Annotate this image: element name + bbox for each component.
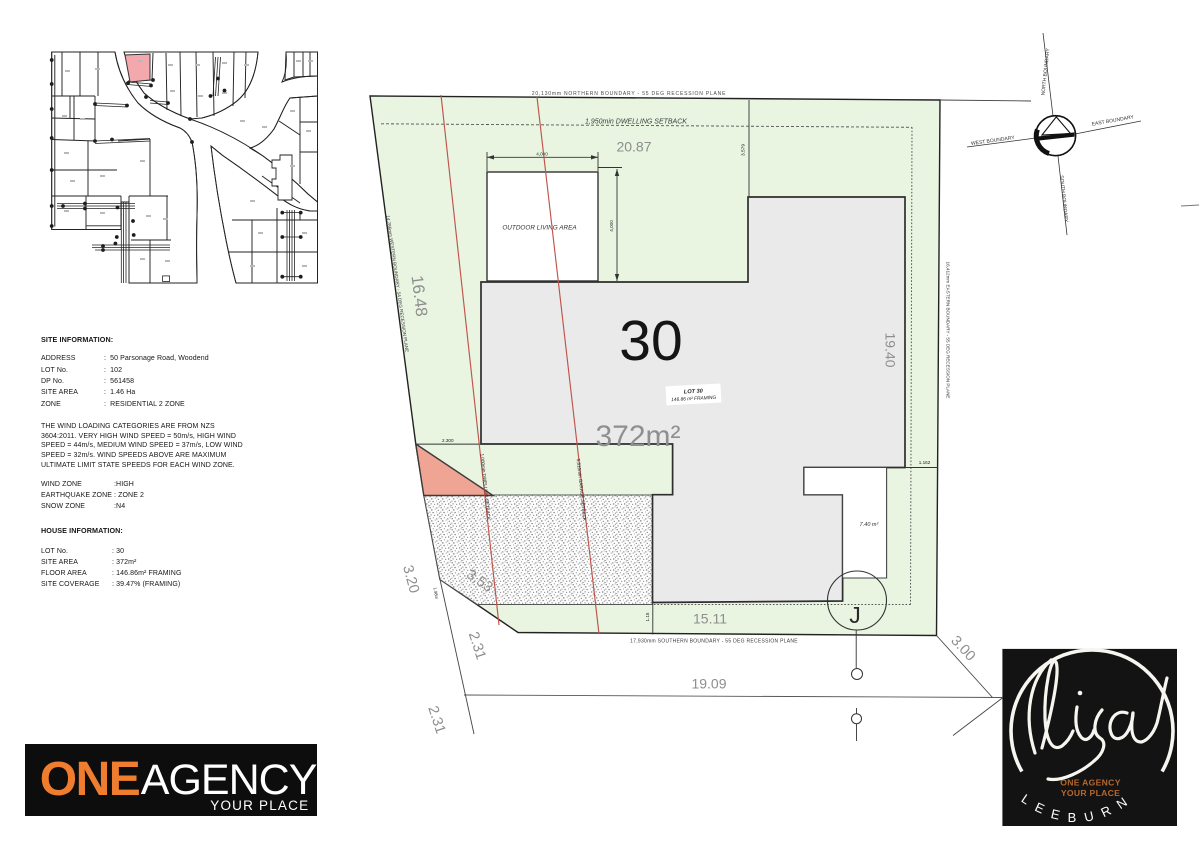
svg-text:20.87: 20.87 [616, 139, 651, 155]
svg-text:YOUR PLACE: YOUR PLACE [1061, 788, 1120, 798]
svg-text:WEST BOUNDARY: WEST BOUNDARY [971, 135, 1016, 147]
svg-text:4,000: 4,000 [536, 151, 548, 156]
svg-text:EAST BOUNDARY: EAST BOUNDARY [1091, 114, 1135, 127]
svg-text:17,930mm SOUTHERN BOUNDARY - 5: 17,930mm SOUTHERN BOUNDARY - 55 DEG RECE… [630, 639, 798, 645]
svg-text:1.15: 1.15 [645, 612, 650, 621]
svg-text:1.98m: 1.98m [433, 587, 440, 600]
svg-text:16,412mm EASTERN BOUNDARY - 55: 16,412mm EASTERN BOUNDARY - 55 DEG RECES… [946, 262, 951, 399]
svg-text:SOUTH BOUNDARY: SOUTH BOUNDARY [1058, 175, 1069, 223]
svg-text:2.31: 2.31 [465, 630, 489, 662]
svg-text:7.40 m²: 7.40 m² [860, 522, 879, 528]
svg-text:2.300: 2.300 [442, 438, 454, 443]
svg-text:372m²: 372m² [595, 420, 680, 453]
svg-text:20,130mm NORTHERN BOUNDARY - 5: 20,130mm NORTHERN BOUNDARY - 55 DEG RECE… [532, 91, 726, 97]
svg-text:3.00: 3.00 [947, 633, 978, 665]
svg-text:ONE AGENCY: ONE AGENCY [1060, 778, 1120, 788]
svg-text:J: J [849, 602, 861, 628]
svg-text:19.09: 19.09 [691, 676, 726, 692]
svg-text:19.40: 19.40 [883, 332, 899, 367]
svg-text:LOT 30: LOT 30 [684, 388, 704, 395]
svg-text:3.579: 3.579 [741, 144, 747, 156]
svg-text:30: 30 [619, 309, 682, 373]
svg-text:15.11: 15.11 [693, 611, 727, 627]
svg-text:OUTDOOR LIVING AREA: OUTDOOR LIVING AREA [502, 225, 576, 232]
svg-text:4,000: 4,000 [609, 220, 614, 232]
svg-text:1.162: 1.162 [919, 460, 931, 465]
svg-text:1,950min DWELLING SETBACK: 1,950min DWELLING SETBACK [585, 119, 687, 126]
svg-text:3.20: 3.20 [399, 564, 422, 595]
svg-text:2.31: 2.31 [424, 704, 448, 736]
